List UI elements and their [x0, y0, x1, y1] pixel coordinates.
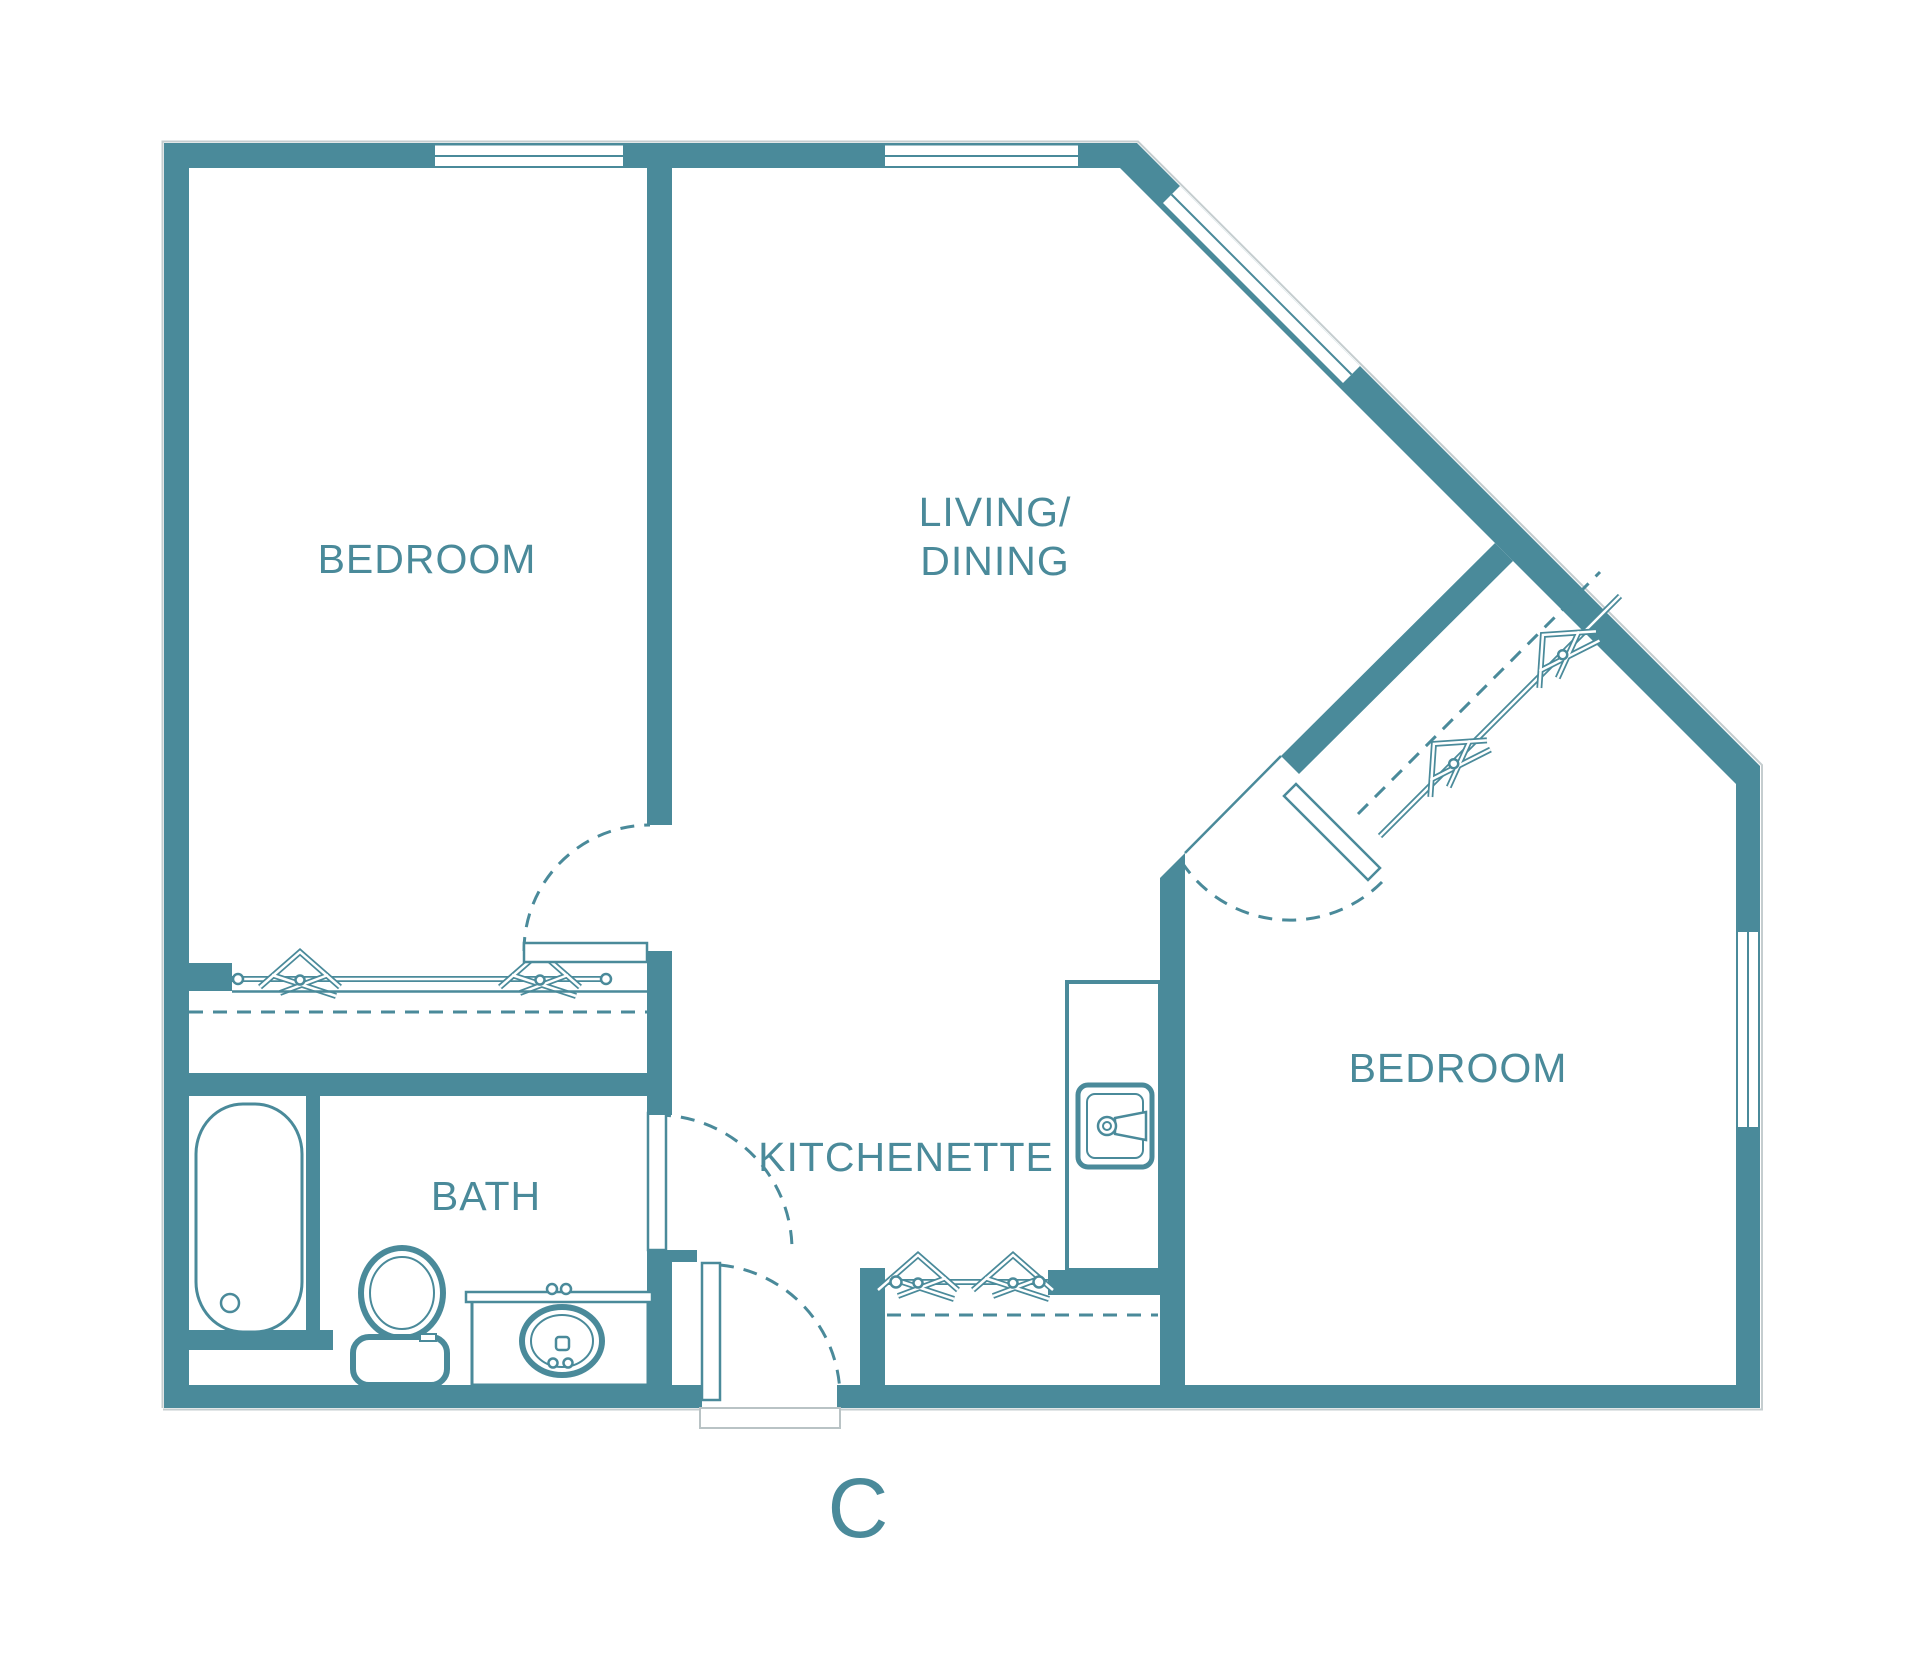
- wall-bath-top: [189, 1073, 672, 1096]
- label-unit-letter: C: [828, 1461, 889, 1555]
- walls: [164, 143, 1760, 1408]
- hanger-icon: [260, 952, 340, 996]
- door-leaf: [1284, 784, 1380, 880]
- wall-bedroom-right-left: [1160, 853, 1185, 1385]
- door-swing-arc: [524, 825, 650, 951]
- closet-rod-end: [233, 974, 243, 984]
- door-entry: [700, 1263, 840, 1428]
- bathtub: [196, 1104, 302, 1332]
- exterior-shadow: [163, 142, 1763, 1410]
- wall-left-exterior: [164, 143, 189, 1408]
- vanity-lip: [466, 1292, 652, 1302]
- label-bath: BATH: [431, 1173, 541, 1219]
- entry-opening: [702, 1383, 837, 1410]
- window-diagonal: [1163, 186, 1360, 383]
- vanity-sink: [466, 1284, 652, 1385]
- toilet-bowl: [361, 1248, 443, 1338]
- door-leaf: [702, 1263, 720, 1400]
- label-living-line1: LIVING/: [919, 489, 1072, 535]
- door-swing-arc: [720, 1265, 840, 1396]
- closet-rod-end: [891, 1277, 902, 1288]
- door-swing-arc: [1181, 861, 1382, 920]
- window-bedroom-right: [1738, 932, 1758, 1127]
- label-living-line2: DINING: [920, 538, 1070, 584]
- closet-shelf-dashed: [1358, 572, 1600, 814]
- wall-kitchen-stub: [1048, 1270, 1160, 1295]
- vanity-faucet: [556, 1337, 569, 1350]
- door-bedroom-left: [524, 824, 672, 962]
- wall-middle-upper: [647, 168, 672, 823]
- toilet: [353, 1248, 447, 1385]
- door-bedroom-right: [1181, 784, 1382, 920]
- tub-drain: [221, 1294, 239, 1312]
- toilet-tank: [353, 1337, 447, 1385]
- kitchen-sink: [1078, 1085, 1152, 1167]
- label-bedroom-right: BEDROOM: [1349, 1045, 1568, 1091]
- floor-plan-page: BEDROOM LIVING/ DINING BEDROOM BATH KITC…: [0, 0, 1927, 1679]
- closet-rod-end: [1034, 1277, 1045, 1288]
- wall-closet-stub-left: [189, 963, 232, 991]
- window-bedroom-left-top: [435, 146, 623, 167]
- door-leaf: [524, 943, 647, 962]
- wall-middle-lower: [647, 1250, 672, 1385]
- label-kitchenette: KITCHENETTE: [758, 1134, 1054, 1180]
- wall-bottom-exterior: [164, 1385, 1760, 1408]
- window-living-top: [885, 146, 1078, 167]
- wall-bathdoor-stub: [647, 1250, 697, 1262]
- entry-threshold: [700, 1408, 840, 1428]
- door-leaf: [648, 1113, 666, 1250]
- closet-rod-end: [601, 974, 611, 984]
- wall-tub-partition: [306, 1095, 320, 1348]
- label-bedroom-left: BEDROOM: [318, 536, 537, 582]
- kitchenette-fixtures: [1067, 982, 1160, 1270]
- hanger-icon: [1406, 716, 1494, 804]
- kitchen-faucet-spout: [1115, 1112, 1146, 1140]
- hanger-icon: [878, 1255, 958, 1299]
- floor-plan-unit-c: BEDROOM LIVING/ DINING BEDROOM BATH KITC…: [0, 0, 1927, 1679]
- closet-door-jamb-line: [1185, 756, 1281, 853]
